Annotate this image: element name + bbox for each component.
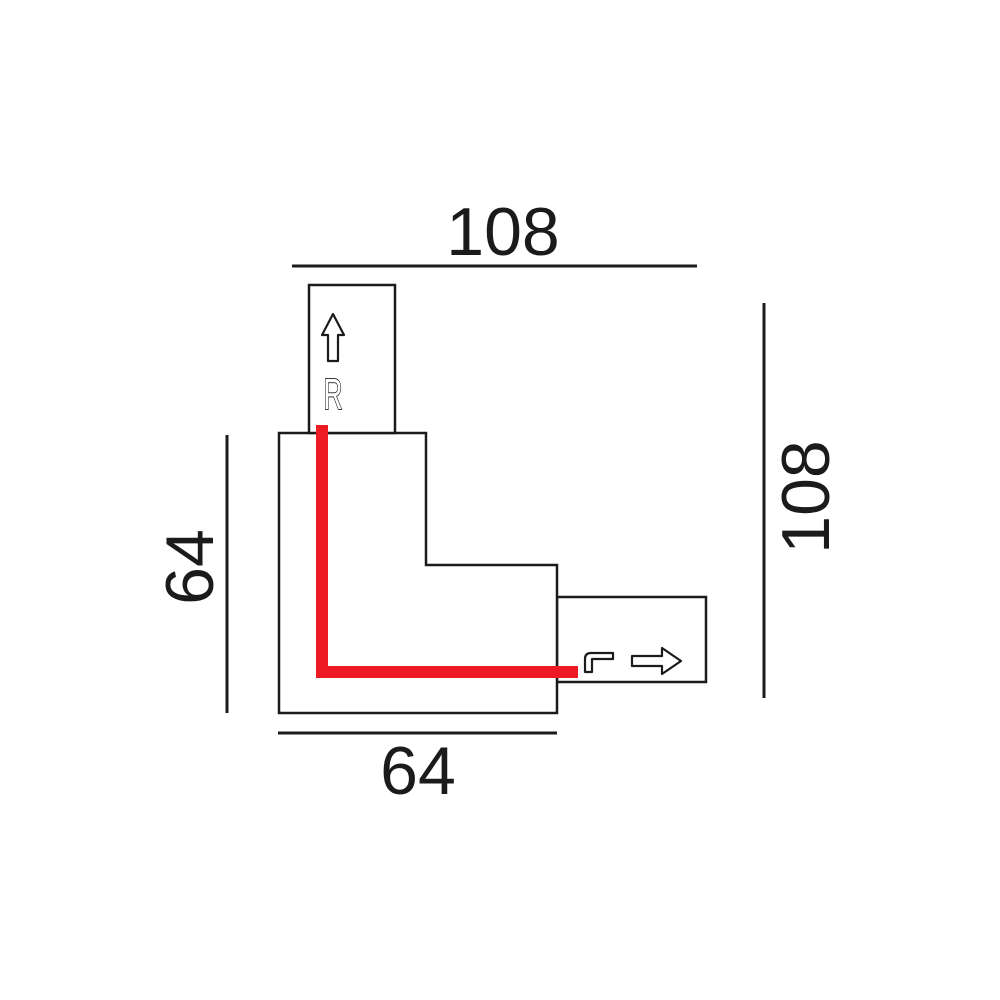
diagram-canvas: R 108 108 64 64 — [0, 0, 1000, 1000]
dimension-label-left: 64 — [155, 467, 225, 667]
dimension-label-bottom: 64 — [318, 736, 518, 806]
dimension-label-right: 108 — [771, 397, 841, 597]
dimension-label-top: 108 — [353, 197, 653, 267]
connector-drawing: R — [0, 0, 1000, 1000]
right-connector-stub — [557, 597, 706, 682]
top-connector-stub — [309, 285, 395, 433]
top-stub-label: R — [324, 370, 343, 419]
